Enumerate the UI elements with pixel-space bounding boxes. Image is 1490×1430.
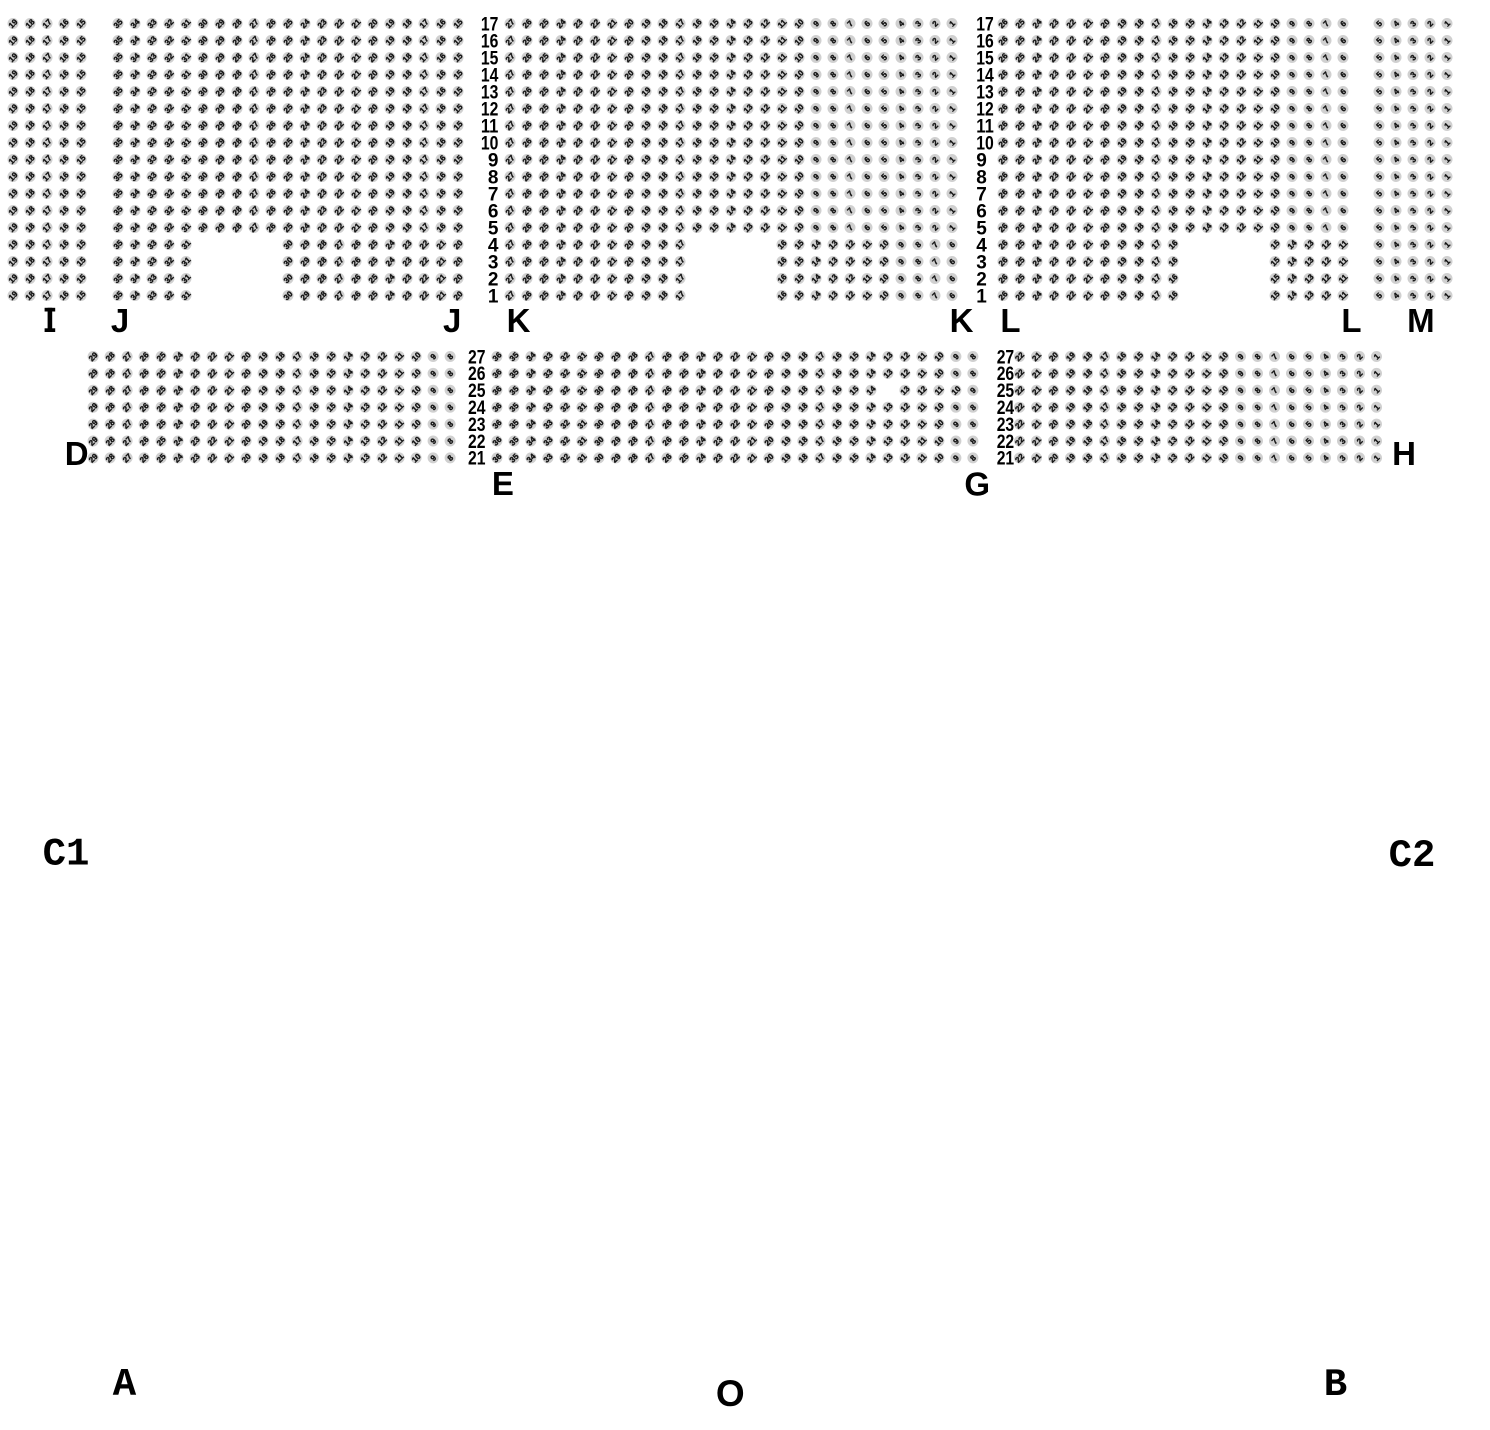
svg-text:O: O [716, 1373, 745, 1414]
svg-text:L: L [1000, 302, 1020, 339]
svg-text:J: J [443, 302, 461, 339]
svg-text:C2: C2 [1389, 834, 1436, 878]
svg-text:D: D [65, 435, 89, 472]
svg-text:G: G [964, 466, 990, 503]
svg-text:J: J [111, 302, 129, 339]
svg-text:A: A [113, 1363, 137, 1407]
svg-text:C1: C1 [43, 833, 90, 877]
svg-text:1: 1 [488, 286, 499, 307]
svg-text:B: B [1324, 1363, 1347, 1407]
svg-text:1: 1 [976, 286, 987, 307]
svg-text:E: E [492, 465, 514, 502]
svg-text:K: K [507, 302, 531, 339]
svg-text:21: 21 [468, 449, 486, 470]
svg-text:21: 21 [997, 449, 1015, 470]
svg-text:M: M [1407, 302, 1435, 339]
svg-text:L: L [1341, 302, 1361, 339]
svg-text:K: K [950, 302, 974, 339]
svg-text:H: H [1392, 435, 1416, 472]
